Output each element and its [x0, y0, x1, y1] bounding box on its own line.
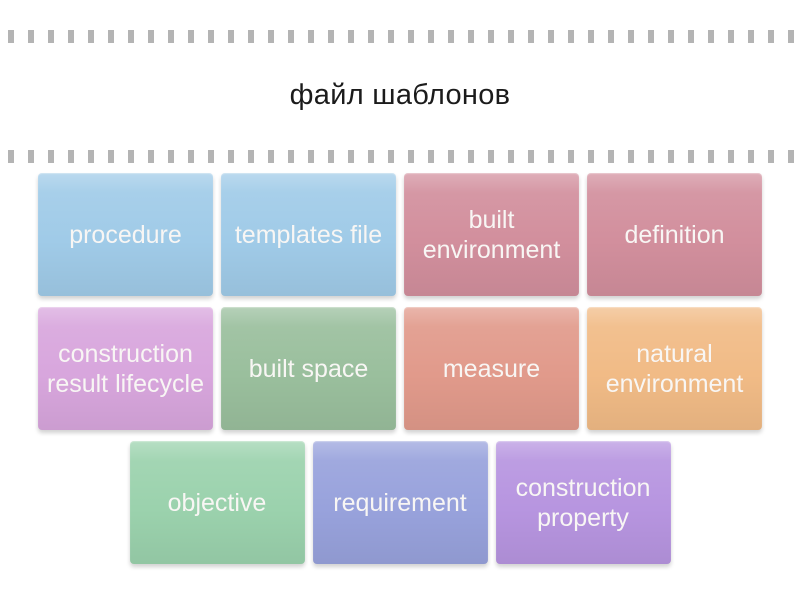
- answer-tile-procedure[interactable]: procedure: [38, 173, 213, 296]
- answer-tile-construction-result-lifecycle[interactable]: construction result lifecycle: [38, 307, 213, 430]
- answer-tile-objective[interactable]: objective: [130, 441, 305, 564]
- answer-tile-definition[interactable]: definition: [587, 173, 762, 296]
- page-title: файл шаблонов: [0, 79, 800, 112]
- answer-tile-built-space[interactable]: built space: [221, 307, 396, 430]
- tile-label: construction result lifecycle: [46, 339, 205, 399]
- answer-board: procedure templates file built environme…: [0, 173, 800, 564]
- answer-tile-construction-property[interactable]: construction property: [496, 441, 671, 564]
- tile-label: built environment: [412, 205, 571, 265]
- tile-label: requirement: [333, 488, 466, 518]
- answer-tile-requirement[interactable]: requirement: [313, 441, 488, 564]
- perforation-line-top: [8, 30, 796, 43]
- answer-tile-built-environment[interactable]: built environment: [404, 173, 579, 296]
- answer-tile-measure[interactable]: measure: [404, 307, 579, 430]
- tile-label: built space: [249, 354, 369, 384]
- tile-label: construction property: [504, 473, 663, 533]
- tile-label: definition: [624, 220, 724, 250]
- tile-label: natural environment: [595, 339, 754, 399]
- tile-label: objective: [168, 488, 267, 518]
- tile-label: templates file: [235, 220, 382, 250]
- quiz-page: файл шаблонов procedure templates file b…: [0, 0, 800, 600]
- tile-label: procedure: [69, 220, 182, 250]
- tile-label: measure: [443, 354, 540, 384]
- tile-row-3: objective requirement construction prope…: [0, 441, 800, 564]
- tile-row-2: construction result lifecycle built spac…: [0, 307, 800, 430]
- answer-tile-natural-environment[interactable]: natural environment: [587, 307, 762, 430]
- perforation-line-middle: [8, 150, 796, 163]
- tile-row-1: procedure templates file built environme…: [0, 173, 800, 296]
- answer-tile-templates-file[interactable]: templates file: [221, 173, 396, 296]
